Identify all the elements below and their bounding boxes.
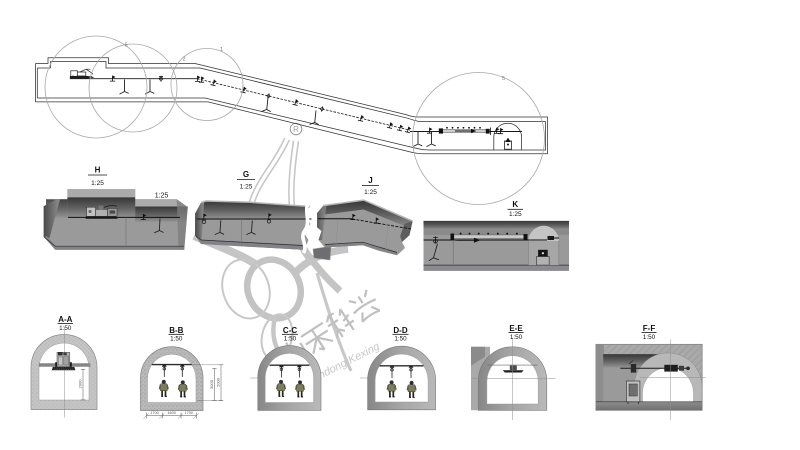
- svg-text:1:50: 1:50: [284, 336, 297, 343]
- svg-text:R: R: [293, 125, 299, 134]
- svg-text:1:50: 1:50: [170, 336, 183, 343]
- svg-text:2: 2: [183, 57, 186, 63]
- svg-text:1:50: 1:50: [510, 334, 523, 341]
- svg-text:D-D: D-D: [393, 326, 407, 335]
- svg-text:1:25: 1:25: [240, 184, 253, 191]
- svg-text:1:50: 1:50: [59, 325, 72, 332]
- svg-text:1:25: 1:25: [155, 193, 169, 200]
- svg-text:6: 6: [125, 43, 128, 49]
- svg-text:3000: 3000: [209, 379, 214, 389]
- svg-text:A-A: A-A: [58, 315, 72, 324]
- svg-text:C-C: C-C: [283, 326, 297, 335]
- svg-text:E-E: E-E: [509, 324, 523, 333]
- svg-text:5: 5: [502, 76, 505, 82]
- svg-text:F-F: F-F: [643, 324, 656, 333]
- svg-text:G: G: [243, 170, 249, 179]
- svg-text:J: J: [368, 176, 372, 185]
- svg-text:1:50: 1:50: [643, 334, 656, 341]
- svg-text:1:25: 1:25: [364, 189, 377, 196]
- svg-text:2000: 2000: [78, 379, 83, 389]
- svg-text:1:25: 1:25: [91, 180, 104, 187]
- svg-text:1: 1: [220, 47, 223, 53]
- svg-text:1700: 1700: [184, 411, 192, 415]
- svg-text:1600: 1600: [167, 411, 175, 415]
- svg-text:H: H: [95, 166, 101, 175]
- svg-text:1700: 1700: [150, 411, 158, 415]
- svg-text:K: K: [512, 200, 518, 209]
- svg-text:B-B: B-B: [169, 326, 183, 335]
- svg-text:1:25: 1:25: [509, 211, 522, 218]
- svg-text:1:50: 1:50: [394, 336, 407, 343]
- svg-text:2000: 2000: [216, 377, 221, 387]
